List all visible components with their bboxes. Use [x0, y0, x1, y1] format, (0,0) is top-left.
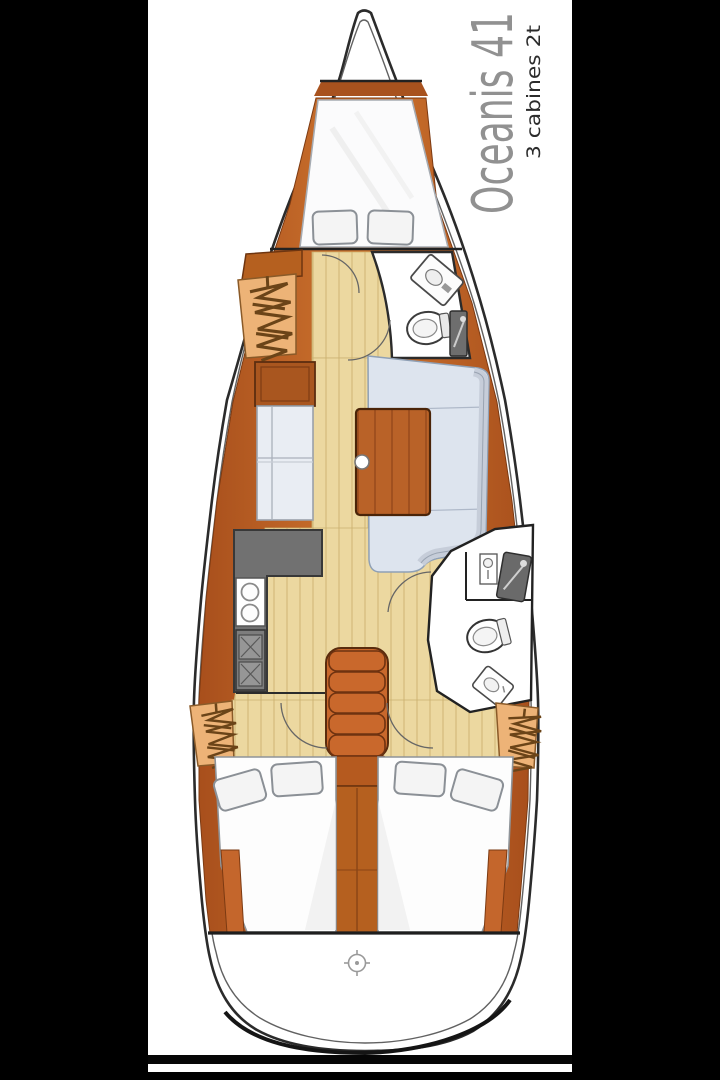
page-subtitle: 3 cabines 2t [523, 25, 545, 159]
boat-plan-figure: Oceanis 41 3 cabines 2t [148, 0, 572, 1072]
table-post [355, 455, 369, 469]
berth-pillow [367, 210, 413, 245]
title-block: Oceanis 41 3 cabines 2t [461, 12, 545, 214]
stove-burner-icon [236, 630, 265, 690]
berth-pillow [271, 761, 323, 796]
aft-cabin-port-berth [213, 757, 336, 933]
berth-pillow [312, 210, 357, 245]
forward-hanging-locker [238, 274, 296, 361]
salon-port-bench [257, 406, 313, 520]
forward-bulkhead [314, 82, 428, 96]
page: { "header": { "title": "Oceanis 41", "su… [0, 0, 720, 1080]
salon-port-cabinet [255, 362, 315, 406]
salon-table [355, 409, 430, 515]
galley-sink-icon [236, 578, 265, 626]
bottom-rule [148, 1055, 572, 1064]
plan-sheet: Oceanis 41 3 cabines 2t [148, 0, 572, 1072]
berth-pillow [394, 761, 446, 796]
page-title: Oceanis 41 [461, 12, 526, 214]
shower-icon [450, 311, 467, 356]
aft-head-sink-icon [480, 554, 497, 584]
aft-cabin-starboard-berth [378, 757, 513, 933]
